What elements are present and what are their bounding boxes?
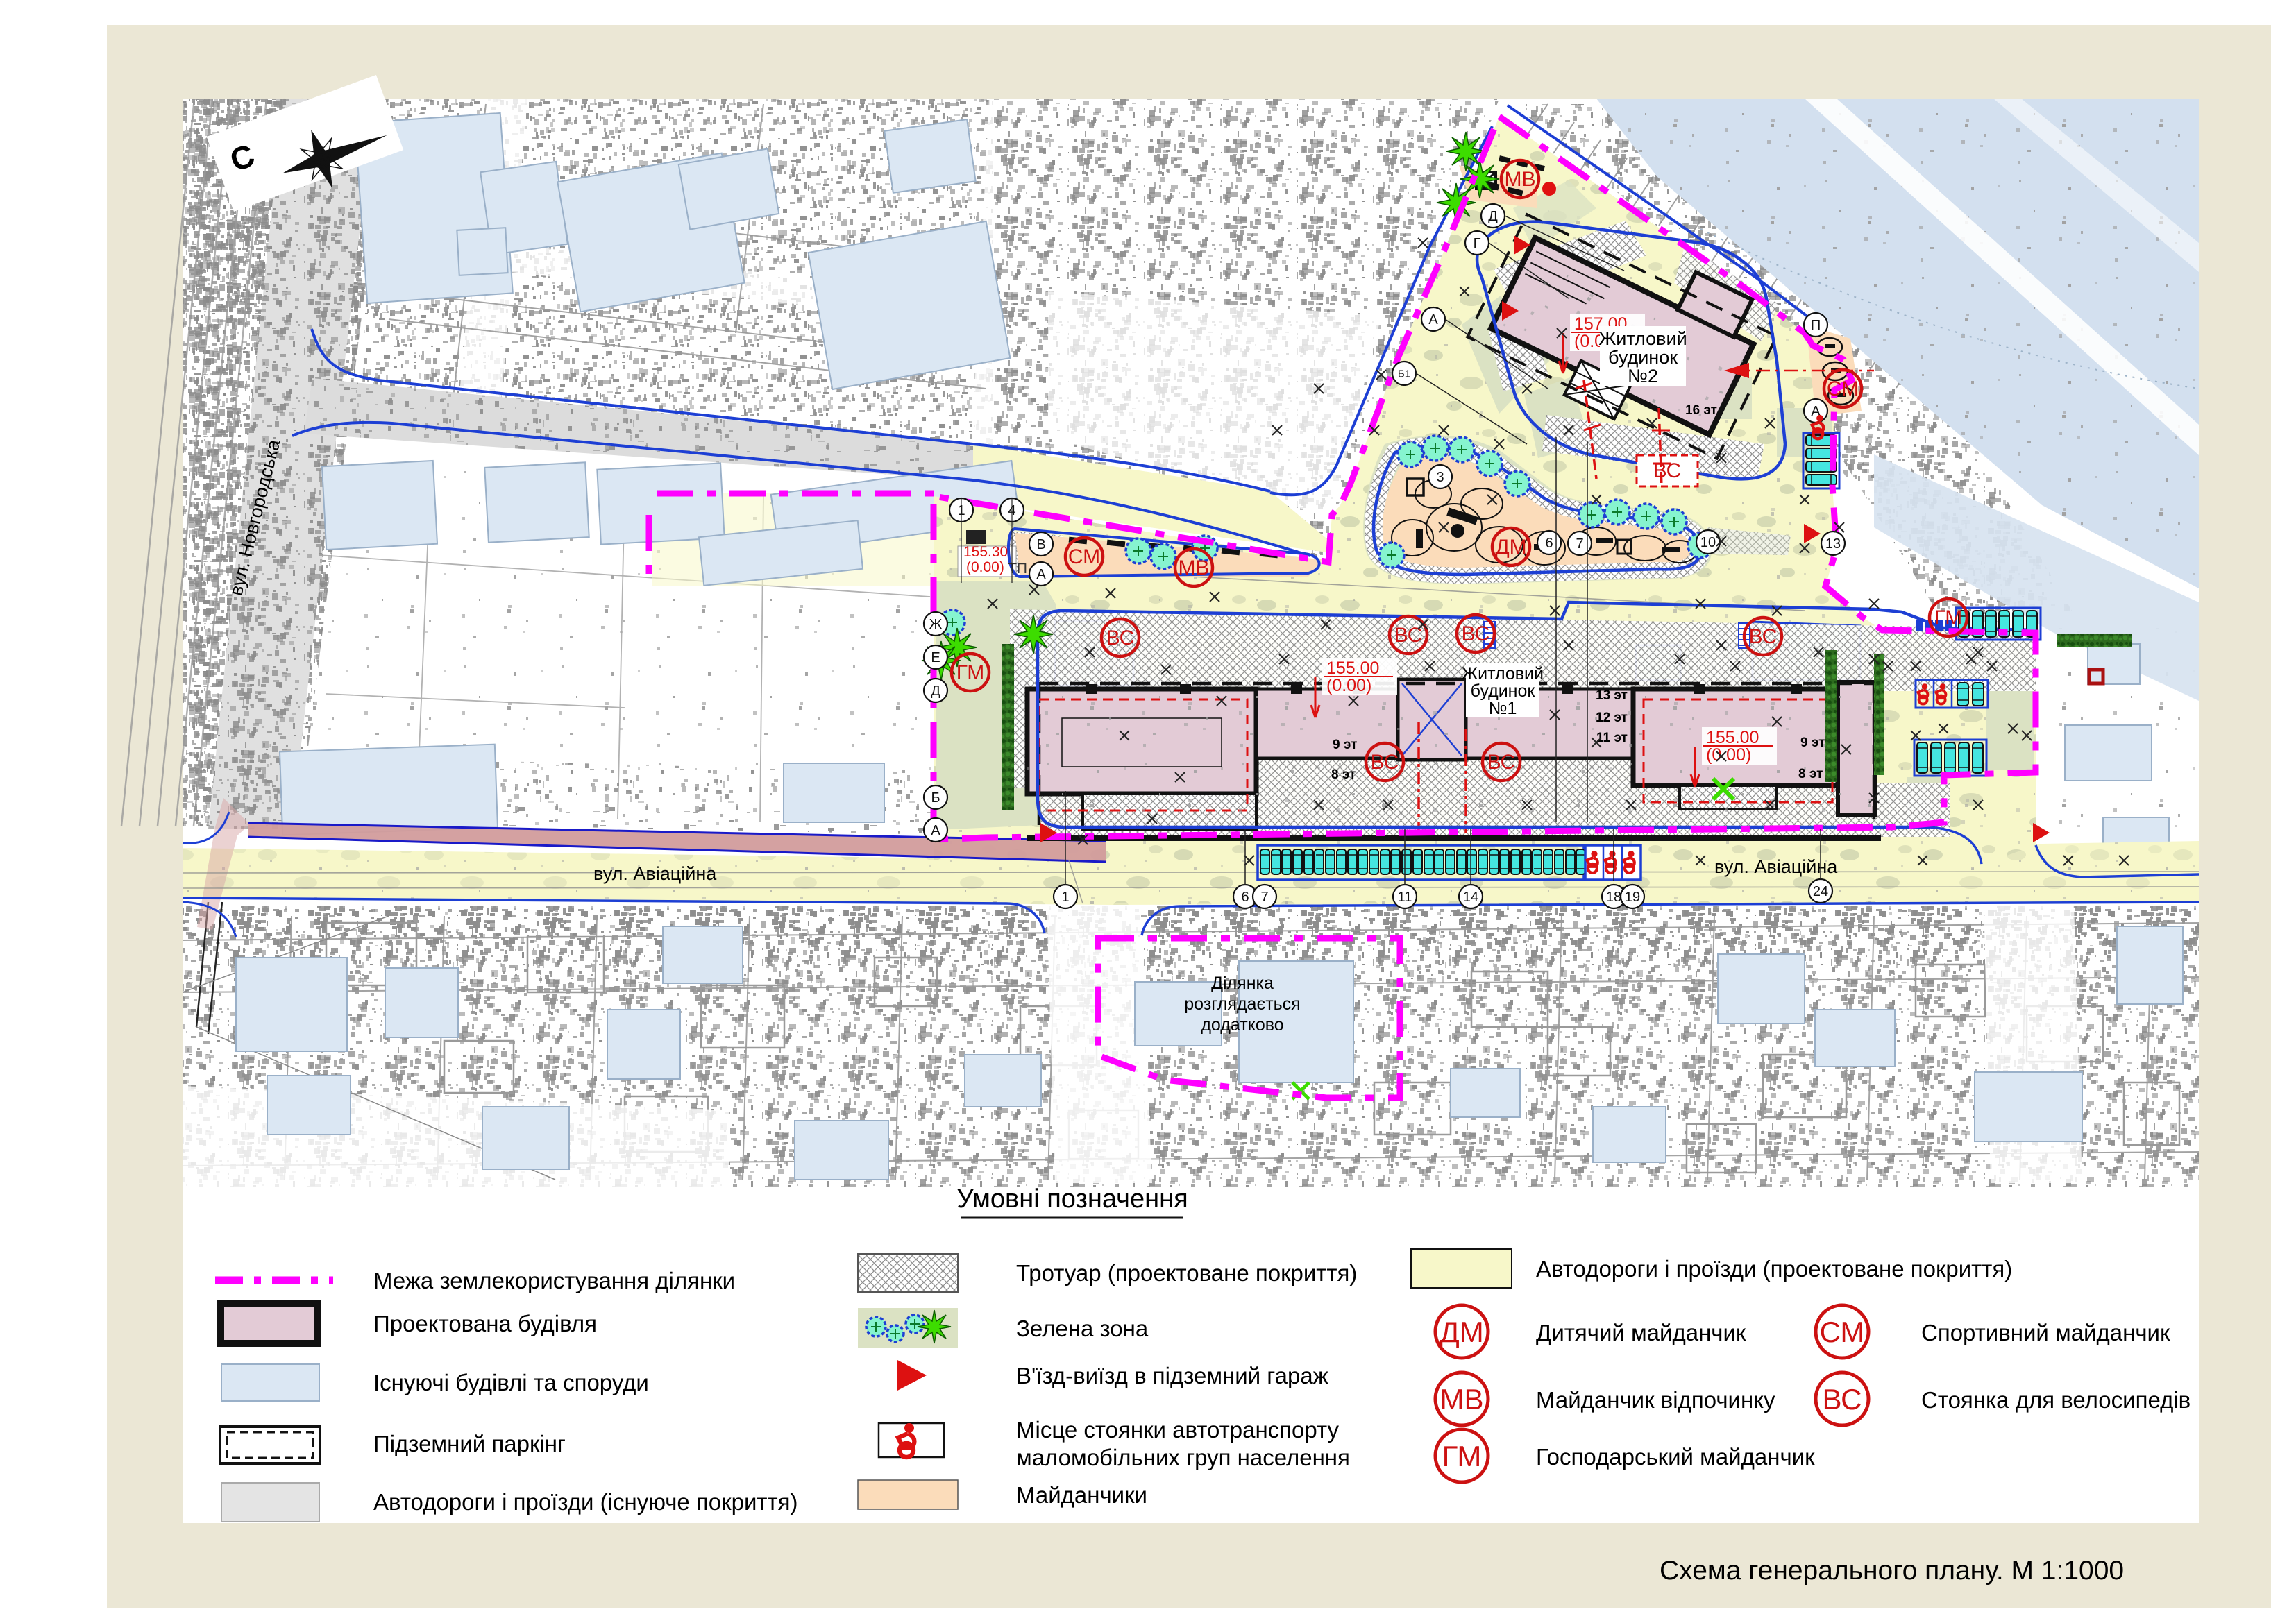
svg-text:Зелена зона: Зелена зона xyxy=(1016,1316,1149,1341)
svg-text:Існуючі будівлі та споруди: Існуючі будівлі та споруди xyxy=(373,1370,649,1395)
svg-text:ДМ: ДМ xyxy=(1495,536,1526,559)
svg-text:Автодороги і проїзди (проектов: Автодороги і проїзди (проектоване покрит… xyxy=(1536,1256,2012,1282)
svg-text:(0.00): (0.00) xyxy=(1326,676,1371,695)
svg-text:ВС: ВС xyxy=(1394,624,1423,647)
svg-text:24: 24 xyxy=(1813,884,1828,899)
svg-text:А: А xyxy=(931,823,940,838)
svg-text:будинок: будинок xyxy=(1471,681,1536,701)
svg-text:Тротуар (проектоване покриття): Тротуар (проектоване покриття) xyxy=(1016,1260,1357,1286)
svg-text:СМ: СМ xyxy=(1068,545,1100,568)
svg-text:155.00: 155.00 xyxy=(1706,728,1759,747)
svg-text:Житловий: Житловий xyxy=(1598,328,1687,349)
svg-text:вул. Авіаційна: вул. Авіаційна xyxy=(1714,856,1838,877)
svg-text:11: 11 xyxy=(1398,890,1412,905)
svg-text:Стоянка для велосипедів: Стоянка для велосипедів xyxy=(1921,1387,2191,1413)
svg-text:155.30: 155.30 xyxy=(963,544,1008,560)
svg-text:7: 7 xyxy=(1260,890,1268,905)
svg-text:9 эт: 9 эт xyxy=(1800,736,1825,750)
svg-text:Схема генерального плану. М 1: Схема генерального плану. М 1:1000 xyxy=(1660,1556,2124,1586)
svg-text:Автодороги і проїзди (існуюче: Автодороги і проїзди (існуюче покриття) xyxy=(373,1489,797,1515)
svg-text:ВС: ВС xyxy=(1823,1383,1862,1416)
svg-text:Господарський майданчик: Господарський майданчик xyxy=(1536,1444,1815,1470)
svg-text:П: П xyxy=(1811,318,1821,333)
svg-text:СМ: СМ xyxy=(1820,1316,1865,1348)
svg-text:(0.00): (0.00) xyxy=(1706,745,1751,765)
svg-text:10: 10 xyxy=(1700,535,1716,550)
svg-text:6: 6 xyxy=(1241,890,1249,905)
svg-text:ГМ: ГМ xyxy=(1934,606,1963,629)
svg-text:3: 3 xyxy=(1436,470,1444,485)
svg-text:Б1: Б1 xyxy=(1398,368,1410,380)
svg-text:18: 18 xyxy=(1606,890,1621,905)
svg-text:Майданчик відпочинку: Майданчик відпочинку xyxy=(1536,1387,1775,1413)
svg-text:Д: Д xyxy=(1488,209,1498,224)
svg-text:В'їзд-виїзд в підземний гараж: В'їзд-виїзд в підземний гараж xyxy=(1016,1363,1328,1388)
svg-text:Д: Д xyxy=(931,683,940,699)
svg-text:МВ: МВ xyxy=(1440,1383,1484,1416)
svg-text:А: А xyxy=(1036,567,1046,582)
svg-text:7: 7 xyxy=(1576,536,1583,552)
svg-text:Ділянка: Ділянка xyxy=(1211,974,1274,993)
svg-text:ВС: ВС xyxy=(1462,622,1490,645)
svg-text:ВС: ВС xyxy=(1106,627,1135,649)
svg-text:Б: Б xyxy=(931,790,940,806)
svg-text:А: А xyxy=(1428,312,1438,328)
svg-text:Е: Е xyxy=(931,650,940,665)
svg-text:19: 19 xyxy=(1625,890,1640,905)
svg-text:Житловий: Житловий xyxy=(1462,664,1544,683)
svg-text:1: 1 xyxy=(1061,890,1069,905)
svg-text:В: В xyxy=(1036,537,1045,552)
svg-text:ГМ: ГМ xyxy=(956,661,985,684)
svg-text:СМ: СМ xyxy=(1827,377,1859,400)
svg-text:Майданчики: Майданчики xyxy=(1016,1482,1147,1508)
svg-text:6: 6 xyxy=(1545,536,1553,551)
svg-text:13 эт: 13 эт xyxy=(1596,688,1628,703)
svg-text:Підземний паркінг: Підземний паркінг xyxy=(373,1431,566,1456)
svg-text:вул. Авіаційна: вул. Авіаційна xyxy=(593,863,717,884)
svg-text:МВ: МВ xyxy=(1179,556,1210,579)
svg-text:155.00: 155.00 xyxy=(1326,658,1379,678)
svg-text:№2: №2 xyxy=(1628,366,1658,386)
svg-text:12 эт: 12 эт xyxy=(1596,711,1628,725)
svg-text:ДМ: ДМ xyxy=(1440,1316,1483,1348)
svg-text:ТП: ТП xyxy=(1008,561,1027,577)
svg-text:Місце стоянки автотранспорту: Місце стоянки автотранспорту xyxy=(1016,1417,1340,1443)
svg-text:8 эт: 8 эт xyxy=(1331,767,1356,782)
svg-text:13: 13 xyxy=(1825,536,1841,552)
svg-text:ГМ: ГМ xyxy=(1442,1440,1482,1472)
svg-text:маломобільних груп населення: маломобільних груп населення xyxy=(1016,1445,1350,1470)
svg-text:МВ: МВ xyxy=(1505,168,1536,191)
svg-text:(0.00): (0.00) xyxy=(966,559,1004,575)
svg-text:Дитячий майданчик: Дитячий майданчик xyxy=(1536,1320,1746,1345)
svg-text:8 эт: 8 эт xyxy=(1798,767,1823,781)
svg-text:Ж: Ж xyxy=(929,617,943,632)
svg-text:Проектована будівля: Проектована будівля xyxy=(373,1311,597,1336)
svg-text:№1: №1 xyxy=(1489,699,1517,718)
svg-text:розглядається: розглядається xyxy=(1184,994,1300,1014)
svg-text:Межа землекористування ділянки: Межа землекористування ділянки xyxy=(373,1268,735,1293)
svg-text:ВС: ВС xyxy=(1749,625,1778,648)
svg-text:ВС: ВС xyxy=(1371,751,1399,774)
svg-text:Умовні позначення: Умовні позначення xyxy=(956,1184,1188,1214)
svg-text:ВС: ВС xyxy=(1487,751,1516,774)
svg-text:9 эт: 9 эт xyxy=(1333,738,1357,752)
svg-text:будинок: будинок xyxy=(1608,347,1678,368)
svg-text:Спортивний майданчик: Спортивний майданчик xyxy=(1921,1320,2170,1345)
svg-text:додатково: додатково xyxy=(1201,1015,1283,1035)
svg-text:Г: Г xyxy=(1474,236,1481,251)
svg-text:14: 14 xyxy=(1463,890,1478,905)
svg-text:16 эт: 16 эт xyxy=(1685,403,1717,418)
